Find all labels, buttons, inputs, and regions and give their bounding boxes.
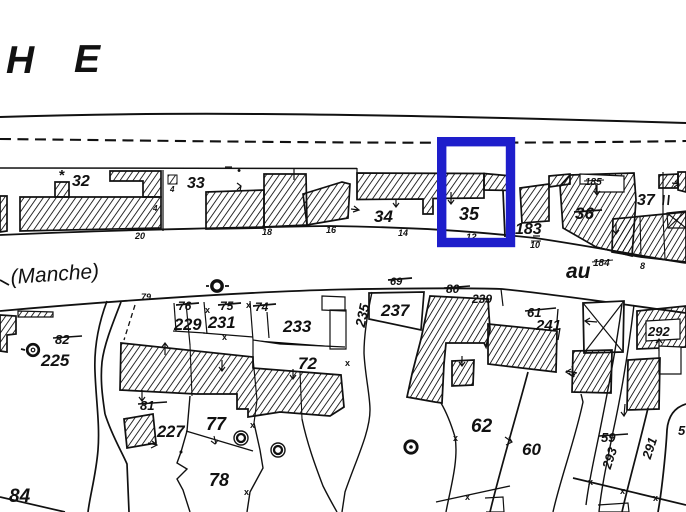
svg-text:81: 81 (140, 398, 154, 413)
svg-text:*: * (59, 167, 65, 184)
svg-text:5: 5 (678, 423, 686, 438)
svg-text:16: 16 (326, 225, 337, 235)
svg-text:75: 75 (220, 299, 234, 313)
svg-text:33: 33 (187, 175, 205, 192)
svg-text:82: 82 (55, 332, 70, 347)
svg-text:x: x (250, 420, 255, 430)
svg-text:x: x (653, 493, 658, 503)
svg-text:8: 8 (640, 261, 645, 271)
svg-text:au: au (566, 260, 591, 283)
svg-text:231: 231 (207, 314, 236, 332)
svg-text:x: x (244, 487, 249, 497)
svg-text:x: x (588, 477, 593, 487)
svg-text:E: E (74, 38, 101, 81)
svg-text:59: 59 (601, 430, 616, 445)
svg-text:H: H (6, 39, 35, 82)
svg-text:292: 292 (647, 324, 670, 339)
svg-text:4: 4 (152, 204, 158, 213)
svg-text:34: 34 (374, 207, 393, 226)
svg-text:237: 237 (380, 301, 411, 320)
svg-text:x: x (620, 486, 625, 496)
svg-text:79: 79 (141, 292, 151, 302)
svg-text:60: 60 (522, 440, 541, 459)
svg-text:x: x (345, 358, 350, 368)
svg-text:80: 80 (446, 282, 460, 296)
svg-text:x: x (465, 492, 470, 502)
svg-text:20: 20 (134, 231, 145, 241)
svg-text:x: x (222, 332, 227, 342)
svg-text:76: 76 (178, 299, 192, 313)
svg-text:37: 37 (637, 192, 656, 209)
svg-text:18: 18 (262, 227, 272, 237)
svg-text:233: 233 (282, 317, 312, 336)
svg-text:35: 35 (459, 204, 480, 224)
svg-text:4: 4 (169, 185, 175, 194)
svg-text:77: 77 (206, 414, 227, 434)
svg-text:185: 185 (585, 177, 602, 188)
svg-text:225: 225 (40, 351, 70, 370)
svg-text:184: 184 (593, 258, 610, 269)
svg-text:72: 72 (298, 354, 317, 373)
svg-text:62: 62 (471, 416, 493, 437)
svg-text:69: 69 (390, 276, 403, 288)
svg-text:x: x (453, 433, 458, 443)
svg-text:74: 74 (255, 300, 269, 314)
svg-text:78: 78 (209, 470, 229, 490)
svg-text:14: 14 (398, 228, 408, 238)
svg-text:32: 32 (72, 173, 90, 190)
svg-text:227: 227 (156, 423, 185, 441)
svg-text:36: 36 (575, 204, 594, 223)
